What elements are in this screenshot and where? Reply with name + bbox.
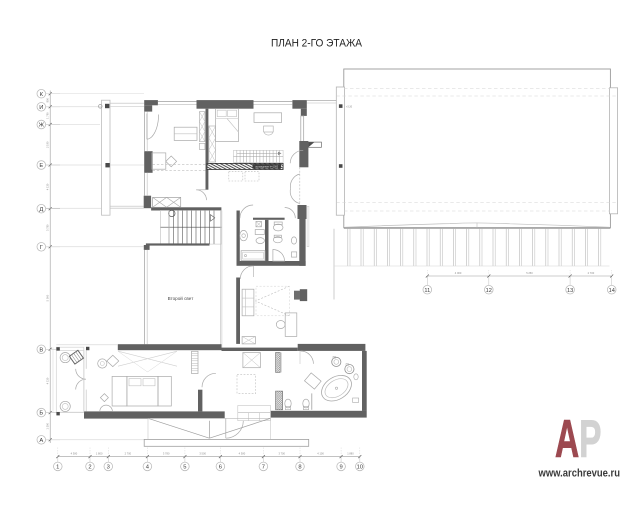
- svg-text:4 100: 4 100: [317, 452, 324, 456]
- svg-text:13: 13: [567, 288, 573, 294]
- svg-text:8: 8: [298, 465, 301, 471]
- svg-text:1 880: 1 880: [347, 452, 354, 456]
- svg-text:1 800: 1 800: [96, 452, 103, 456]
- svg-text:2 700: 2 700: [125, 452, 132, 456]
- svg-text:ПЛАН 2-ГО ЭТАЖА: ПЛАН 2-ГО ЭТАЖА: [271, 38, 362, 50]
- svg-text:3 780: 3 780: [46, 224, 50, 231]
- svg-text:4 000: 4 000: [455, 271, 462, 275]
- svg-text:6: 6: [219, 465, 222, 471]
- svg-text:4 130: 4 130: [46, 377, 50, 384]
- svg-text:Второй свет: Второй свет: [168, 295, 195, 301]
- svg-text:12: 12: [486, 288, 492, 294]
- svg-text:АР: АР: [555, 410, 602, 469]
- svg-text:3 700: 3 700: [278, 452, 285, 456]
- svg-text:3 780: 3 780: [163, 452, 170, 456]
- svg-text:5 000: 5 000: [46, 294, 50, 301]
- svg-text:ограждение h=1000: ограждение h=1000: [255, 166, 278, 169]
- svg-text:14: 14: [609, 288, 615, 294]
- svg-text:4 380: 4 380: [239, 452, 246, 456]
- svg-text:Ж: Ж: [39, 123, 45, 129]
- svg-text:4 380: 4 380: [71, 452, 78, 456]
- svg-text:В: В: [39, 347, 43, 353]
- svg-text:Д: Д: [39, 207, 43, 213]
- svg-text:1 500: 1 500: [46, 422, 50, 429]
- svg-text:1 790: 1 790: [46, 112, 50, 119]
- svg-text:4 130: 4 130: [46, 183, 50, 190]
- svg-text:1: 1: [56, 465, 59, 471]
- svg-text:+3,30: +3,30: [346, 106, 353, 109]
- svg-text:3 500: 3 500: [199, 452, 206, 456]
- svg-text:Б: Б: [39, 411, 43, 417]
- svg-text:9: 9: [339, 465, 342, 471]
- svg-text:7: 7: [262, 465, 265, 471]
- svg-text:5: 5: [183, 465, 186, 471]
- svg-text:2: 2: [88, 465, 91, 471]
- svg-text:5 250: 5 250: [526, 271, 533, 275]
- svg-text:2 700: 2 700: [588, 271, 595, 275]
- svg-text:Е: Е: [39, 163, 43, 169]
- svg-text:11: 11: [424, 288, 430, 294]
- svg-text:А: А: [39, 438, 43, 444]
- svg-text:3: 3: [107, 465, 110, 471]
- svg-text:10: 10: [357, 465, 363, 471]
- svg-text:www.archrevue.ru: www.archrevue.ru: [538, 467, 620, 479]
- svg-text:2 190: 2 190: [46, 141, 50, 148]
- svg-text:И: И: [39, 105, 43, 111]
- svg-text:800: 800: [46, 98, 50, 103]
